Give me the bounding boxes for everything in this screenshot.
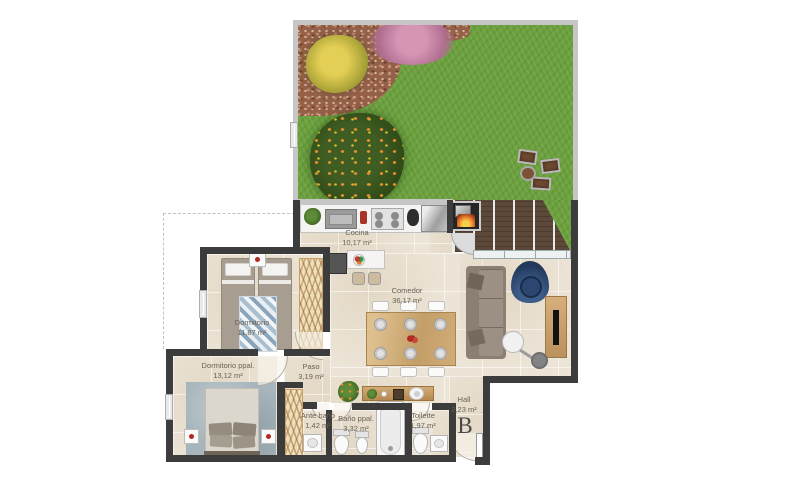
nightstand xyxy=(261,429,276,444)
room-label-cocina: Cocina 10,17 m² xyxy=(312,228,402,248)
stove-burner xyxy=(375,212,383,220)
garden-gate xyxy=(290,122,298,148)
bar-stool xyxy=(368,272,381,285)
stove-burner xyxy=(391,220,399,228)
lamp-dot xyxy=(266,434,271,439)
kitchen-island xyxy=(347,250,385,269)
lamp-dot xyxy=(255,257,260,262)
pillow xyxy=(233,435,256,449)
grill-fire xyxy=(457,214,475,227)
dining-chair xyxy=(428,367,445,377)
plate xyxy=(434,347,447,360)
grill-parrilla xyxy=(451,201,481,231)
dining-chair xyxy=(372,367,389,377)
pillow xyxy=(210,434,233,447)
bidet xyxy=(355,431,369,454)
bar-stool xyxy=(352,272,365,285)
sofa-pillow xyxy=(467,273,485,291)
bench-plant xyxy=(367,389,377,399)
dining-table xyxy=(366,312,456,366)
plate xyxy=(404,347,417,360)
bidet-bowl xyxy=(356,437,368,454)
wall xyxy=(293,200,300,254)
room-name: Comedor xyxy=(362,286,452,296)
armchair-blue xyxy=(511,261,549,303)
ante-bano-sink xyxy=(303,434,322,452)
bench-cup xyxy=(381,391,387,397)
garden-bush-orange-flowers xyxy=(310,113,404,207)
room-label-paso: Paso 3,19 m² xyxy=(266,362,356,382)
unit-letter: B xyxy=(455,413,475,439)
plate xyxy=(374,347,387,360)
kitchen-dishwasher xyxy=(329,253,347,274)
boundary-dashed-horizontal xyxy=(163,213,295,214)
toilet-bowl xyxy=(413,433,428,454)
room-name: Dormitorio ppal. xyxy=(183,361,273,371)
toilet-bowl xyxy=(334,435,349,455)
tv-console xyxy=(545,296,567,358)
room-label-dormitorio-ppal: Dormitorio ppal. 13,12 m² xyxy=(183,361,273,381)
room-label-dormitorio: Dormitorio 11,87 m² xyxy=(207,318,297,338)
room-name: Dormitorio xyxy=(207,318,297,328)
wall xyxy=(166,349,258,356)
wall xyxy=(303,402,317,409)
nightstand xyxy=(184,429,199,444)
tub-drain xyxy=(388,446,393,451)
plate xyxy=(404,318,417,331)
garden-round-pot xyxy=(520,166,536,181)
double-bed xyxy=(205,388,259,458)
room-name: Hall xyxy=(419,395,509,405)
wall xyxy=(200,247,330,254)
sofa xyxy=(466,266,506,359)
pillow xyxy=(225,263,251,276)
table-centerpiece xyxy=(407,335,418,344)
room-name: Paso xyxy=(266,362,356,372)
nightstand xyxy=(249,252,266,267)
room-area: 11,87 m² xyxy=(207,328,297,338)
floor-lamp-base xyxy=(531,352,548,369)
kitchen-stove xyxy=(371,208,404,230)
kitchen-exterior-wall xyxy=(293,199,453,205)
room-name: Cocina xyxy=(312,228,402,238)
kitchen-pot xyxy=(407,209,419,226)
entry-door-leaf xyxy=(476,433,483,460)
kitchen-bottle xyxy=(360,211,367,224)
wall xyxy=(483,376,578,383)
wall xyxy=(483,376,490,465)
room-area: 36,17 m² xyxy=(362,296,452,306)
sheet-fold xyxy=(222,280,254,284)
bench-basket xyxy=(393,389,404,400)
garden-planter xyxy=(517,149,538,166)
kitchen-plant xyxy=(304,208,321,225)
room-area: 13,12 m² xyxy=(183,371,273,381)
garden-grass xyxy=(298,25,573,207)
room-area: 3,19 m² xyxy=(266,372,356,382)
sheet-fold xyxy=(259,280,291,284)
stove-burner xyxy=(391,212,399,220)
plate xyxy=(374,318,387,331)
garden xyxy=(293,20,578,207)
kitchen-sink xyxy=(325,209,357,229)
plate xyxy=(434,318,447,331)
garden-planter xyxy=(540,158,561,174)
stove-burner xyxy=(375,220,383,228)
floor-plan: Cocina 10,17 m² Comedor 36,17 m² Dormito… xyxy=(0,0,800,491)
wall xyxy=(571,200,578,383)
wall xyxy=(352,403,405,410)
tv xyxy=(553,310,559,345)
floor-lamp-shade xyxy=(502,331,524,353)
wall xyxy=(277,382,303,388)
boundary-dashed-vertical xyxy=(163,213,164,349)
room-area: 10,17 m² xyxy=(312,238,402,248)
kitchen-sink-basin xyxy=(329,214,353,225)
room-label-comedor: Comedor 36,17 m² xyxy=(362,286,452,306)
window-dormitorio-ppal xyxy=(165,394,173,420)
toilette-sink xyxy=(430,435,448,452)
wall xyxy=(447,200,453,233)
lamp-dot xyxy=(189,434,194,439)
sliding-glass-door xyxy=(473,250,571,259)
wall xyxy=(284,349,330,356)
wall xyxy=(475,457,490,465)
dining-chair xyxy=(400,367,417,377)
wall xyxy=(323,247,330,332)
fruit-bowl xyxy=(353,254,365,266)
window-dormitorio xyxy=(199,290,207,318)
